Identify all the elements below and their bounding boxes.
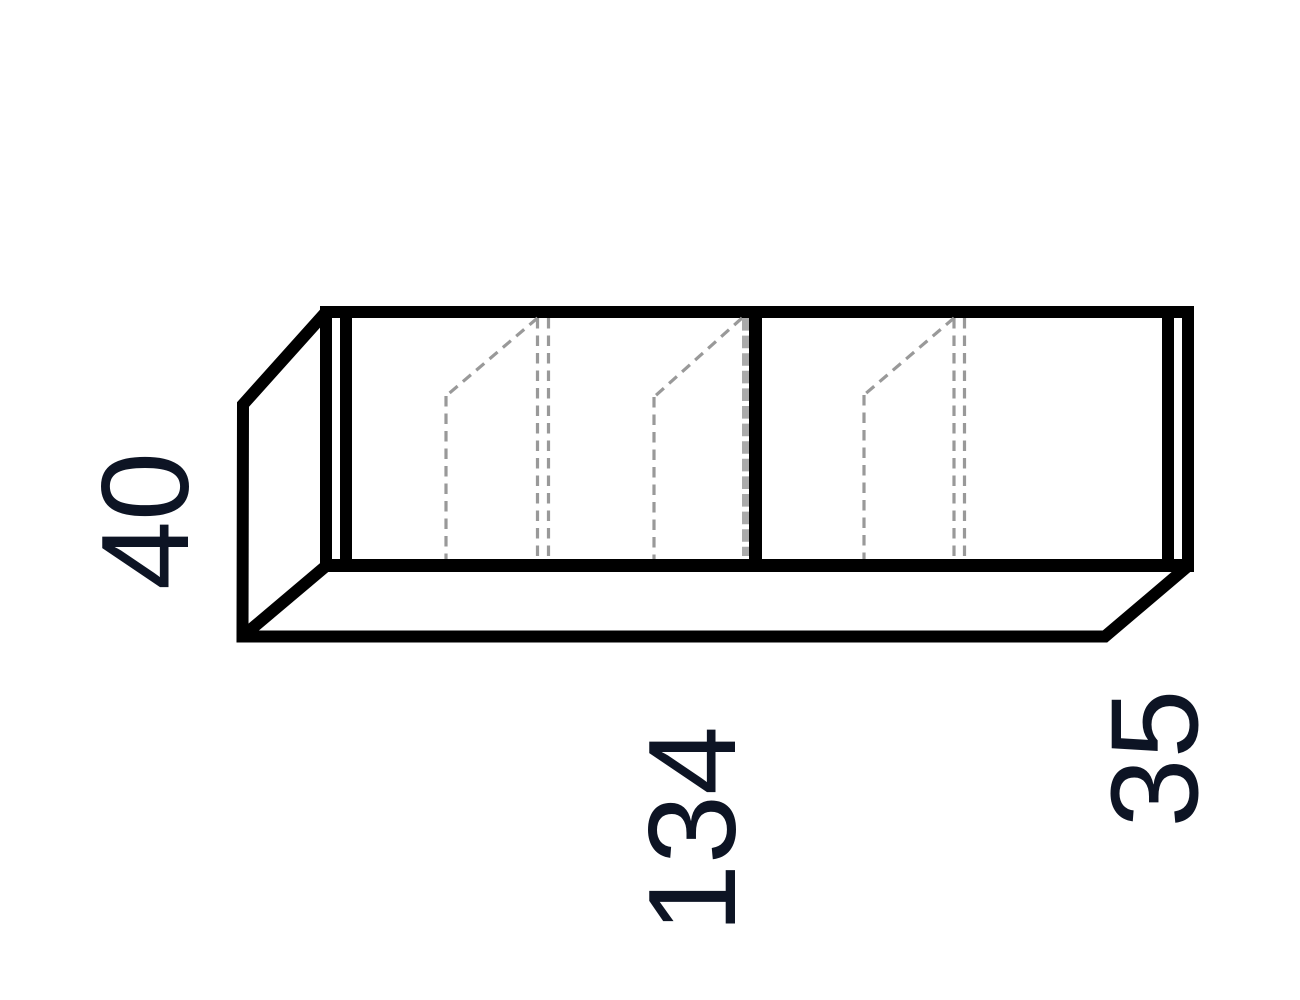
svg-text:40: 40: [77, 452, 215, 590]
svg-text:134: 134: [624, 726, 762, 933]
svg-text:35: 35: [1087, 690, 1225, 828]
